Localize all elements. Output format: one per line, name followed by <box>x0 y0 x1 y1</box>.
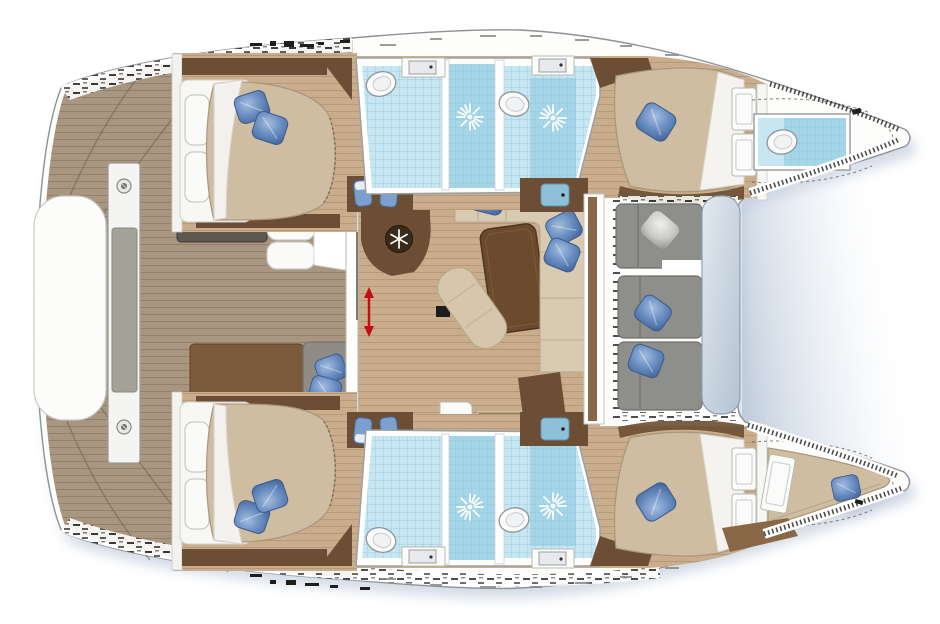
lounge-pad <box>34 196 106 420</box>
white-cushion <box>267 242 315 269</box>
snowflake-icon <box>386 226 413 253</box>
catamaran-floor-plan <box>0 0 940 624</box>
arch-beam <box>108 163 140 463</box>
cockpit-lounge-table <box>702 196 740 414</box>
blue-pillow <box>830 474 862 503</box>
cockpit-sofa <box>616 204 703 410</box>
salon-front-wall <box>588 197 597 421</box>
beam-cushion <box>112 228 137 392</box>
sofa-notch <box>662 260 703 270</box>
